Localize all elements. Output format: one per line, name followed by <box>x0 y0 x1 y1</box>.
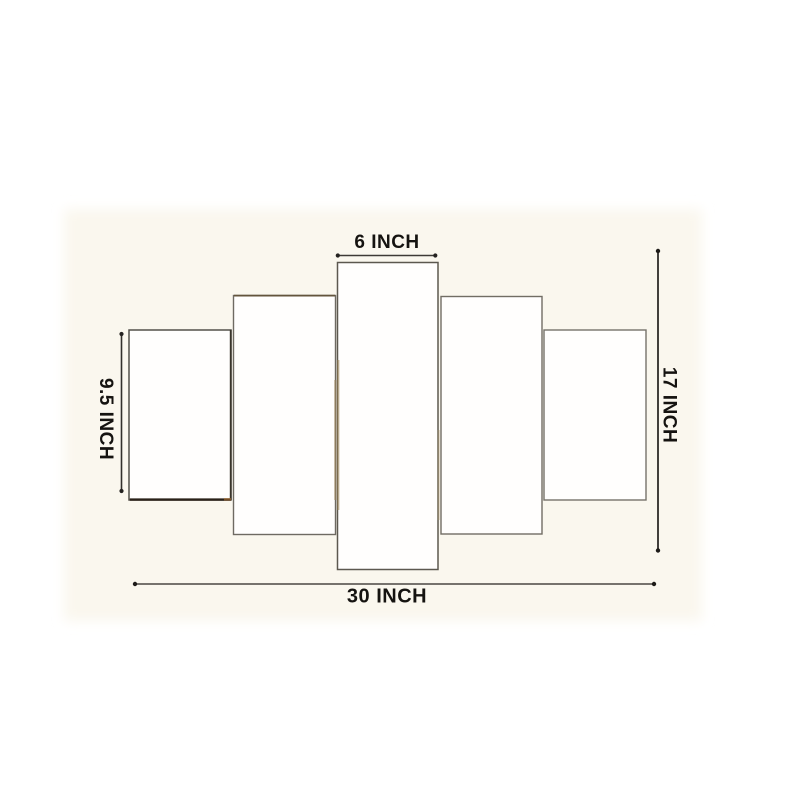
svg-text:17 INCH: 17 INCH <box>659 367 680 443</box>
svg-text:30 INCH: 30 INCH <box>347 586 427 608</box>
svg-text:6 INCH: 6 INCH <box>354 232 419 253</box>
svg-text:9.5 INCH: 9.5 INCH <box>95 378 116 460</box>
